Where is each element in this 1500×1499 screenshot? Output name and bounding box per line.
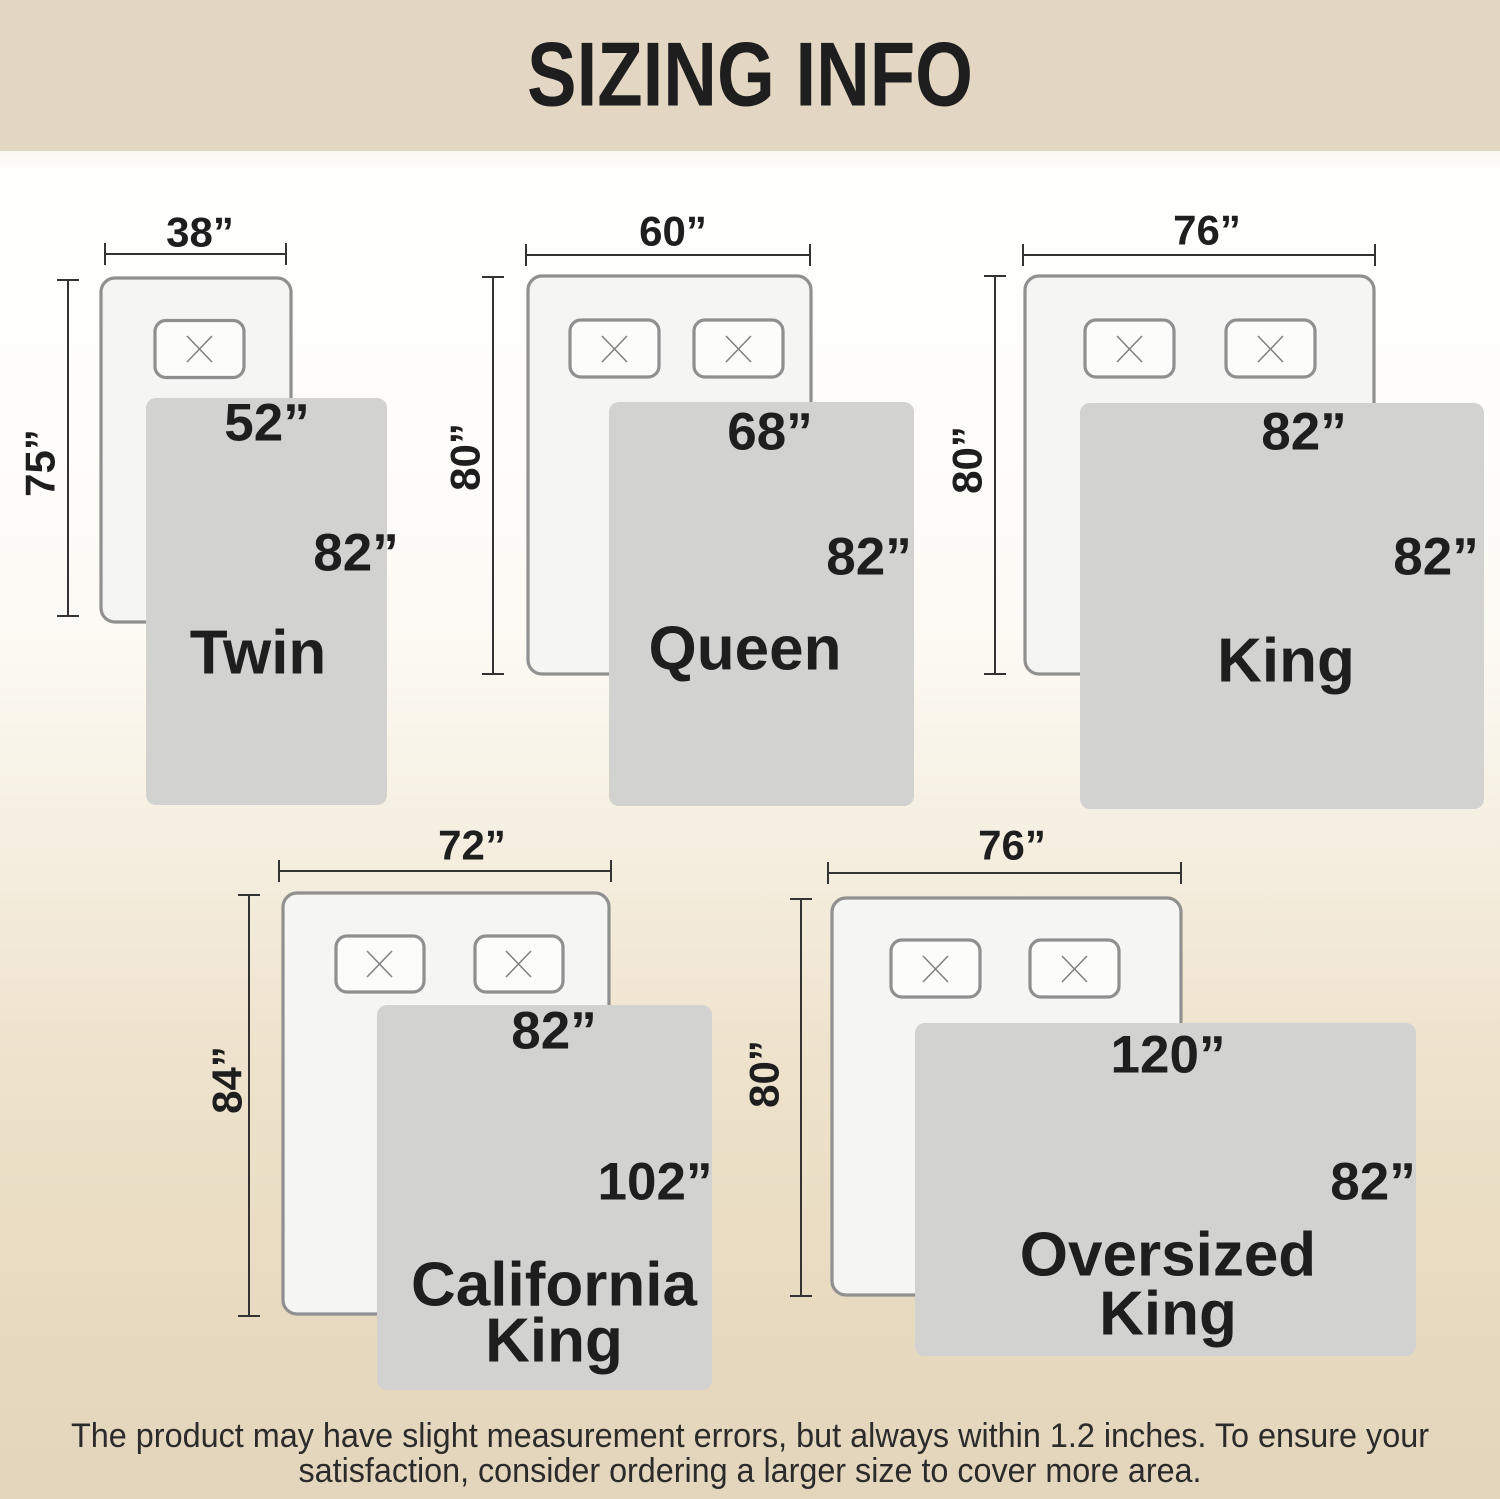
svg-text:82”: 82” xyxy=(313,524,398,583)
svg-text:38”: 38” xyxy=(166,209,234,256)
svg-text:102”: 102” xyxy=(598,1153,713,1212)
svg-text:80”: 80” xyxy=(442,423,489,491)
svg-text:82”: 82” xyxy=(1261,403,1346,462)
svg-text:Twin: Twin xyxy=(190,619,327,688)
svg-text:The product may have slight me: The product may have slight measurement … xyxy=(71,1417,1429,1455)
svg-text:72”: 72” xyxy=(438,822,506,869)
svg-text:68”: 68” xyxy=(727,403,812,462)
svg-text:82”: 82” xyxy=(511,1002,596,1061)
svg-text:82”: 82” xyxy=(826,528,911,587)
svg-text:76”: 76” xyxy=(978,822,1046,869)
svg-text:King: King xyxy=(485,1307,623,1376)
svg-text:82”: 82” xyxy=(1330,1153,1415,1212)
svg-text:76”: 76” xyxy=(1173,207,1241,254)
svg-text:80”: 80” xyxy=(741,1040,788,1108)
svg-text:King: King xyxy=(1099,1280,1237,1349)
svg-text:82”: 82” xyxy=(1393,528,1478,587)
svg-text:King: King xyxy=(1217,627,1355,696)
svg-text:satisfaction, consider orderin: satisfaction, consider ordering a larger… xyxy=(299,1452,1202,1490)
svg-text:SIZING INFO: SIZING INFO xyxy=(527,25,973,126)
svg-text:60”: 60” xyxy=(639,208,707,255)
svg-text:52”: 52” xyxy=(224,394,309,453)
svg-text:75”: 75” xyxy=(17,429,64,497)
svg-text:120”: 120” xyxy=(1111,1026,1226,1085)
svg-text:Queen: Queen xyxy=(649,615,842,684)
svg-text:84”: 84” xyxy=(204,1046,251,1114)
svg-text:80”: 80” xyxy=(944,426,991,494)
